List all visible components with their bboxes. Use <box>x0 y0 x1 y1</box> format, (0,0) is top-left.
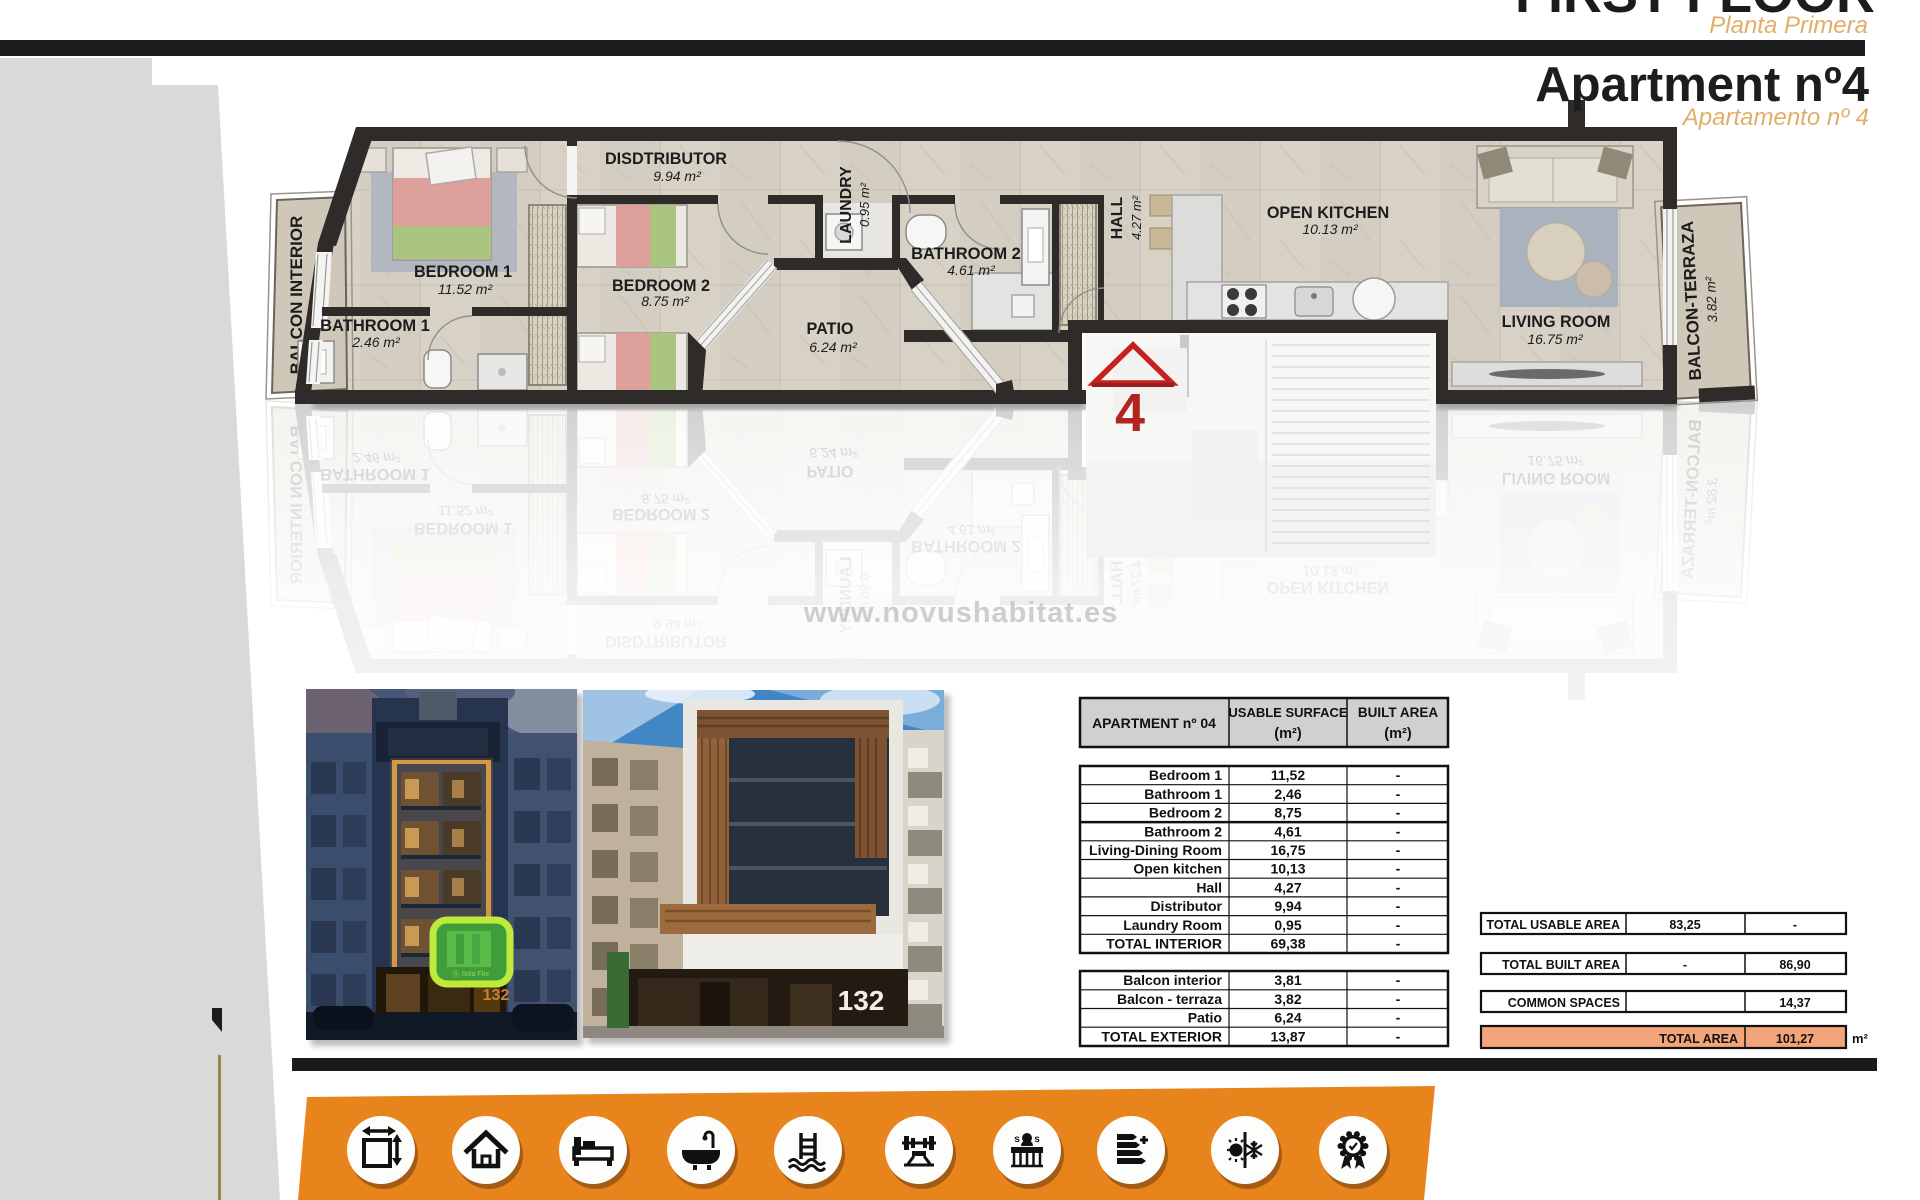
svg-text:Planta Primera: Planta Primera <box>1709 12 1868 39</box>
svg-text:3,82: 3,82 <box>1274 991 1301 1007</box>
svg-text:-: - <box>1396 917 1401 933</box>
svg-text:11,52: 11,52 <box>1271 767 1305 783</box>
svg-text:-: - <box>1396 786 1401 802</box>
svg-text:TOTAL EXTERIOR: TOTAL EXTERIOR <box>1101 1029 1222 1045</box>
svg-text:m²: m² <box>1852 1031 1869 1046</box>
svg-text:Laundry Room: Laundry Room <box>1123 917 1222 933</box>
svg-text:TOTAL INTERIOR: TOTAL INTERIOR <box>1106 936 1222 952</box>
svg-text:101,27: 101,27 <box>1776 1032 1814 1046</box>
svg-text:-: - <box>1396 767 1401 783</box>
svg-text:Living-Dining Room: Living-Dining Room <box>1089 842 1222 858</box>
svg-text:4: 4 <box>1115 383 1145 443</box>
svg-text:Balcon interior: Balcon interior <box>1123 972 1222 988</box>
svg-text:www.novushabitat.es: www.novushabitat.es <box>803 597 1118 629</box>
svg-text:-: - <box>1396 936 1401 952</box>
svg-text:-: - <box>1396 805 1401 821</box>
svg-text:Open kitchen: Open kitchen <box>1133 861 1222 877</box>
svg-text:132: 132 <box>838 985 885 1016</box>
svg-text:COMMON SPACES: COMMON SPACES <box>1508 996 1620 1010</box>
svg-text:BUILT AREA: BUILT AREA <box>1358 705 1438 720</box>
svg-text:10,13: 10,13 <box>1270 861 1305 877</box>
svg-text:Bathroom 1: Bathroom 1 <box>1144 786 1222 802</box>
svg-text:-: - <box>1396 861 1401 877</box>
svg-text:4,61: 4,61 <box>1274 823 1301 839</box>
svg-text:-: - <box>1396 898 1401 914</box>
svg-text:-: - <box>1396 1010 1401 1026</box>
svg-text:2,46: 2,46 <box>1274 786 1301 802</box>
svg-text:Distributor: Distributor <box>1150 898 1222 914</box>
svg-text:-: - <box>1396 823 1401 839</box>
svg-text:83,25: 83,25 <box>1669 918 1700 932</box>
svg-text:0,95: 0,95 <box>1274 917 1301 933</box>
svg-text:Patio: Patio <box>1188 1010 1222 1026</box>
svg-text:Bathroom 2: Bathroom 2 <box>1144 823 1222 839</box>
svg-text:-: - <box>1396 1029 1401 1045</box>
svg-text:TOTAL USABLE AREA: TOTAL USABLE AREA <box>1486 918 1620 932</box>
svg-text:-: - <box>1396 972 1401 988</box>
svg-text:-: - <box>1396 842 1401 858</box>
svg-text:3,81: 3,81 <box>1274 972 1301 988</box>
svg-text:-: - <box>1793 918 1797 932</box>
svg-text:Bedroom 2: Bedroom 2 <box>1149 805 1222 821</box>
svg-text:APARTMENT nº 04: APARTMENT nº 04 <box>1092 715 1216 731</box>
svg-text:TOTAL BUILT AREA: TOTAL BUILT AREA <box>1502 958 1620 972</box>
svg-text:-: - <box>1396 879 1401 895</box>
svg-text:Hall: Hall <box>1196 879 1222 895</box>
svg-text:132: 132 <box>483 987 510 1004</box>
svg-text:Bedroom 1: Bedroom 1 <box>1149 767 1222 783</box>
svg-text:Balcon - terraza: Balcon - terraza <box>1117 991 1222 1007</box>
svg-text:14,37: 14,37 <box>1779 996 1810 1010</box>
svg-text:4,27: 4,27 <box>1274 879 1301 895</box>
svg-text:6,24: 6,24 <box>1274 1010 1301 1026</box>
svg-text:s: s <box>1034 1134 1040 1145</box>
svg-text:8,75: 8,75 <box>1274 805 1301 821</box>
svg-text:16,75: 16,75 <box>1270 842 1305 858</box>
svg-text:(m²): (m²) <box>1384 726 1412 742</box>
svg-text:-: - <box>1683 958 1687 972</box>
svg-text:Ⓢ Sola Flor: Ⓢ Sola Flor <box>453 970 491 978</box>
svg-text:TOTAL AREA: TOTAL AREA <box>1659 1032 1738 1046</box>
svg-text:69,38: 69,38 <box>1270 936 1305 952</box>
svg-text:9,94: 9,94 <box>1274 898 1301 914</box>
svg-text:-: - <box>1396 991 1401 1007</box>
svg-text:86,90: 86,90 <box>1779 958 1810 972</box>
svg-text:USABLE SURFACE: USABLE SURFACE <box>1228 705 1348 720</box>
svg-text:(m²): (m²) <box>1274 726 1302 742</box>
svg-text:Apartamento nº 4: Apartamento nº 4 <box>1681 104 1869 131</box>
svg-text:13,87: 13,87 <box>1270 1029 1305 1045</box>
svg-text:s: s <box>1014 1134 1020 1145</box>
